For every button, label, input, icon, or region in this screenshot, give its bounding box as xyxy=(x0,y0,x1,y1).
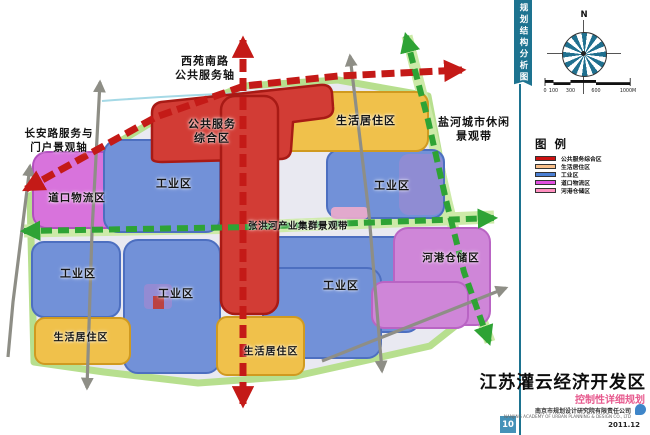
zone-label-logistics: 道口物流区 xyxy=(48,192,106,206)
zone-label-industrial-upper-left: 工业区 xyxy=(156,177,192,191)
sheet-date: 2011.12 xyxy=(608,421,640,429)
road-west-edge xyxy=(8,166,30,357)
zone-label-industrial-bottom-right: 工业区 xyxy=(323,279,359,293)
compass-center-dot xyxy=(581,51,586,56)
scale-label-300: 300 xyxy=(566,88,575,94)
scale-seg-3 xyxy=(571,80,597,83)
zone-label-residential-top-right: 生活居住区 xyxy=(336,114,396,128)
axis-label-changan: 长安路服务与 门户景观轴 xyxy=(25,127,94,154)
scale-baseline xyxy=(545,82,630,83)
zone-label-public-service: 公共服务 综合区 xyxy=(188,118,236,147)
compass-north-label: N xyxy=(580,10,587,20)
zone-tint-pink-strip xyxy=(331,207,368,219)
zone-label-storage: 河港仓储区 xyxy=(422,252,480,266)
legend-swatch-storage xyxy=(535,188,556,194)
scale-label-0: 0 xyxy=(543,88,546,94)
axis-label-xiyuan: 西苑南路 公共服务轴 xyxy=(175,55,235,84)
scale-bar: 0 100 300 600 1000M xyxy=(540,74,645,100)
zone-industrial-bottom-center xyxy=(124,240,220,373)
legend-row-storage: 河港仓储区 xyxy=(535,186,590,195)
legend-label-storage: 河港仓储区 xyxy=(561,186,590,195)
legend-swatch-public-service xyxy=(535,156,556,162)
sheet-subtitle: 控制性详细规划 xyxy=(575,391,645,406)
scale-label-1000m: 1000M xyxy=(620,88,636,94)
zone-label-industrial-bottom-left: 工业区 xyxy=(60,267,96,281)
company-name-english: NANJING ACADEMY OF URBAN PLANNING & DESI… xyxy=(504,414,631,419)
axis-label-yanhe: 盐河城市休闲 景观带 xyxy=(438,116,510,145)
legend-swatch-industrial xyxy=(535,172,556,178)
sheet-tab-label: 规划结构分析图 xyxy=(517,3,529,84)
axis-label-zhanghong: 张洪河产业集群景观带 xyxy=(248,221,348,233)
zone-label-residential-bottom-left: 生活居住区 xyxy=(54,332,109,345)
plan-sheet: 西苑南路 公共服务轴 长安路服务与 门户景观轴 盐河城市休闲 景观带 张洪河产业… xyxy=(0,0,650,435)
zone-label-industrial-right: 工业区 xyxy=(374,179,410,193)
legend-title: 图 例 xyxy=(535,136,568,152)
scale-seg-1 xyxy=(545,80,554,83)
scale-label-100: 100 xyxy=(549,88,558,94)
company-logo-icon xyxy=(635,404,646,415)
zone-label-residential-bottom-center: 生活居住区 xyxy=(244,346,299,359)
scale-label-600: 600 xyxy=(591,88,600,94)
zone-label-industrial-bottom-center: 工业区 xyxy=(158,287,194,301)
legend-swatch-residential xyxy=(535,164,556,170)
legend-swatch-logistics xyxy=(535,180,556,186)
sheet-tab-planning-structure: 规划结构分析图 xyxy=(514,0,532,86)
page-number: 10 xyxy=(502,420,514,430)
